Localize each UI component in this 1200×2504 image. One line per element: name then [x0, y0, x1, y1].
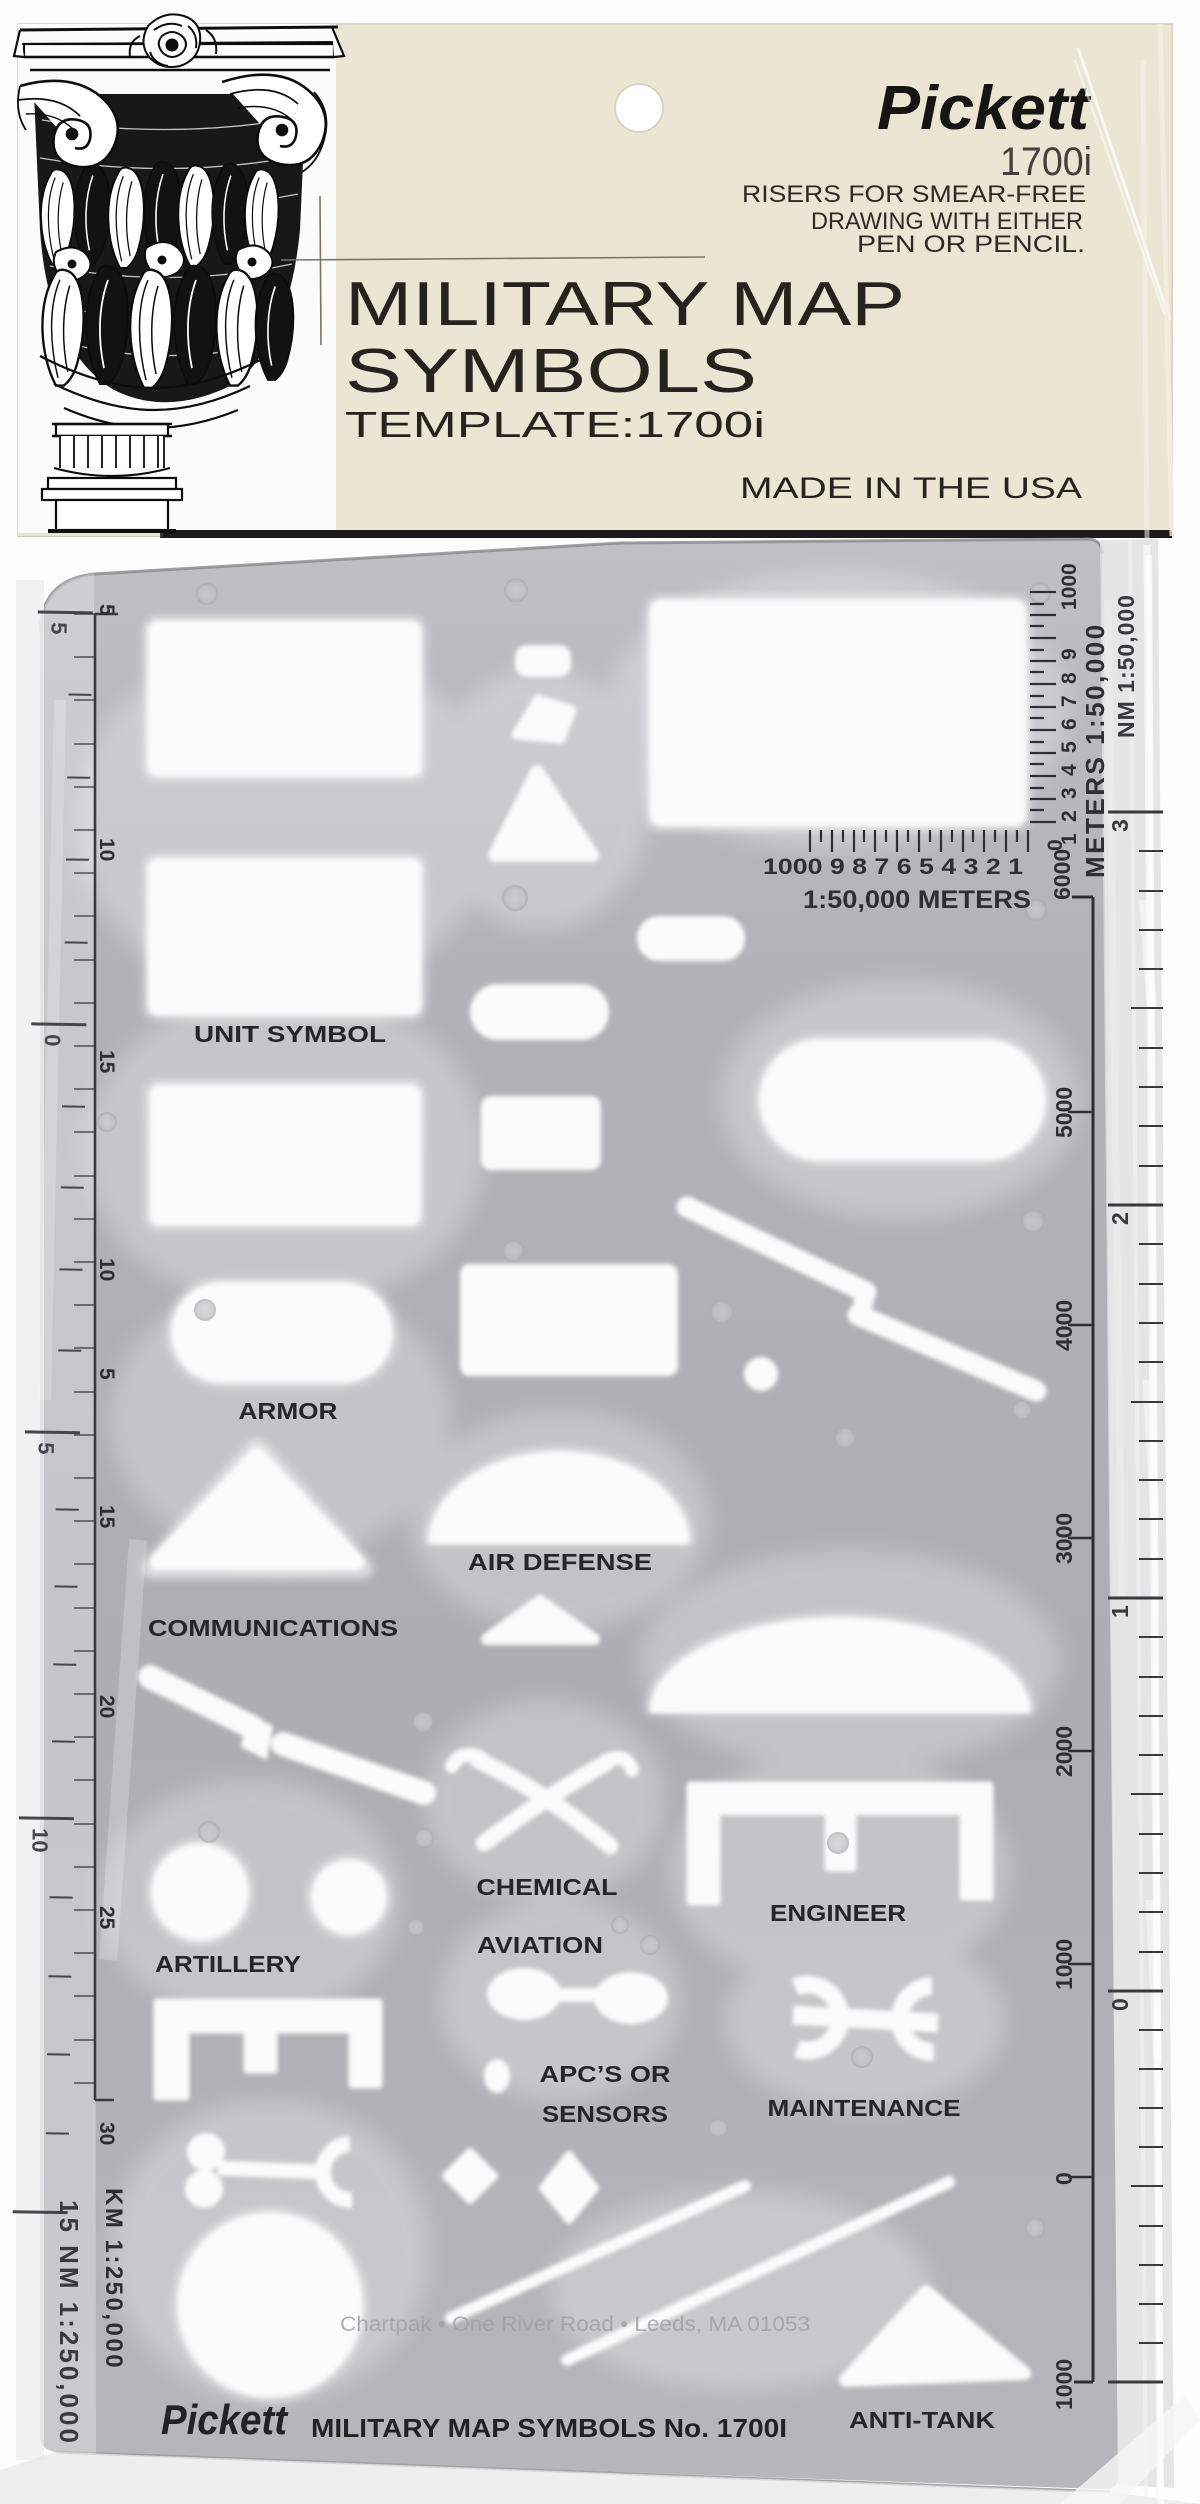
svg-text:ENGINEER: ENGINEER — [770, 1900, 906, 1926]
svg-text:CHEMICAL: CHEMICAL — [477, 1874, 618, 1900]
svg-text:0: 0 — [1107, 1998, 1133, 2011]
svg-text:1: 1 — [1107, 1605, 1133, 1618]
svg-text:5: 5 — [1058, 741, 1081, 753]
svg-text:RISERS FOR SMEAR-FREE: RISERS FOR SMEAR-FREE — [742, 181, 1086, 208]
svg-text:COMMUNICATIONS: COMMUNICATIONS — [148, 1615, 398, 1641]
svg-text:2000: 2000 — [1051, 1726, 1077, 1777]
svg-text:10: 10 — [95, 838, 118, 861]
svg-text:6000: 6000 — [1049, 849, 1075, 900]
svg-text:10: 10 — [95, 1258, 118, 1281]
svg-text:APC’S OR: APC’S OR — [540, 2061, 671, 2087]
svg-text:0: 0 — [40, 1034, 65, 1047]
svg-text:UNIT SYMBOL: UNIT SYMBOL — [194, 1021, 386, 1047]
svg-text:TEMPLATE:1700i: TEMPLATE:1700i — [345, 404, 765, 445]
svg-text:4: 4 — [1058, 764, 1081, 776]
svg-text:1000 9 8 7 6 5 4 3 2 1: 1000 9 8 7 6 5 4 3 2 1 — [763, 854, 1023, 879]
svg-text:MADE IN THE USA: MADE IN THE USA — [740, 472, 1082, 505]
svg-text:SENSORS: SENSORS — [542, 2101, 668, 2127]
svg-text:9: 9 — [1058, 648, 1081, 660]
svg-text:NM 1:50,000: NM 1:50,000 — [1113, 594, 1139, 738]
svg-text:Chartpak • One River Road • Le: Chartpak • One River Road • Leeds, MA 01… — [340, 2313, 810, 2336]
svg-text:3000: 3000 — [1051, 1513, 1077, 1564]
svg-text:MILITARY MAP: MILITARY MAP — [345, 270, 905, 339]
svg-text:ANTI-TANK: ANTI-TANK — [849, 2407, 995, 2433]
svg-text:3: 3 — [1107, 819, 1133, 832]
svg-text:ARTILLERY: ARTILLERY — [155, 1951, 301, 1977]
svg-text:1700i: 1700i — [1000, 140, 1092, 184]
svg-text:1000: 1000 — [1051, 2359, 1077, 2410]
svg-text:15 NM 1:250,000: 15 NM 1:250,000 — [54, 2200, 84, 2446]
svg-text:15: 15 — [95, 1505, 118, 1529]
svg-text:KM 1:250,000: KM 1:250,000 — [100, 2188, 127, 2370]
svg-text:PEN OR PENCIL.: PEN OR PENCIL. — [857, 231, 1085, 258]
svg-text:AIR DEFENSE: AIR DEFENSE — [468, 1549, 652, 1575]
svg-text:METERS 1:50,000: METERS 1:50,000 — [1080, 622, 1110, 878]
svg-text:1:50,000 METERS: 1:50,000 METERS — [803, 886, 1031, 914]
svg-text:1000: 1000 — [1058, 563, 1081, 610]
svg-text:MILITARY MAP SYMBOLS No. 1700I: MILITARY MAP SYMBOLS No. 1700I — [311, 2413, 787, 2443]
svg-text:1000: 1000 — [1051, 1939, 1077, 1990]
svg-text:5: 5 — [34, 1442, 59, 1455]
svg-text:7: 7 — [1058, 695, 1081, 707]
svg-text:25: 25 — [95, 1906, 118, 1930]
svg-text:MAINTENANCE: MAINTENANCE — [768, 2095, 961, 2121]
svg-text:3: 3 — [1058, 787, 1081, 799]
svg-text:5: 5 — [95, 1368, 118, 1380]
svg-text:10: 10 — [27, 1828, 52, 1853]
svg-text:8: 8 — [1058, 672, 1081, 684]
svg-text:20: 20 — [95, 1695, 118, 1718]
svg-text:5: 5 — [46, 622, 71, 635]
svg-text:5: 5 — [95, 604, 118, 616]
svg-text:Pickett: Pickett — [161, 2396, 289, 2443]
svg-text:Pickett: Pickett — [877, 74, 1091, 143]
svg-text:ARMOR: ARMOR — [239, 1398, 338, 1424]
svg-text:6: 6 — [1058, 718, 1081, 730]
svg-text:AVIATION: AVIATION — [477, 1932, 603, 1958]
svg-text:4000: 4000 — [1051, 1300, 1077, 1351]
svg-text:0: 0 — [1051, 2172, 1077, 2185]
svg-text:2: 2 — [1107, 1212, 1133, 1225]
svg-text:5000: 5000 — [1051, 1087, 1077, 1138]
svg-text:15: 15 — [95, 1050, 118, 1074]
svg-text:SYMBOLS: SYMBOLS — [345, 337, 757, 406]
svg-text:2: 2 — [1058, 810, 1081, 822]
svg-text:30: 30 — [95, 2122, 118, 2145]
